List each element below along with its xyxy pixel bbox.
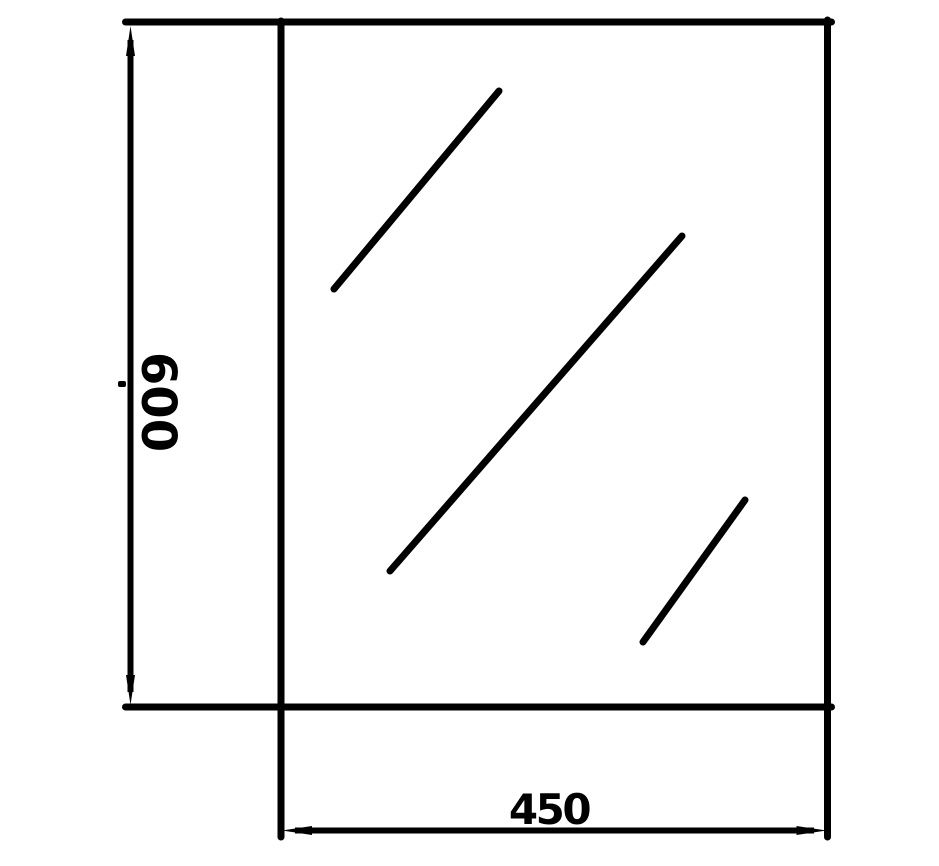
mirror-shine-line-2 (390, 236, 682, 571)
width-dimension-arrow-left-icon (282, 826, 312, 835)
height-dimension-arrow-down-icon (126, 675, 135, 705)
drawing-canvas: 600 450 (0, 0, 939, 866)
width-dimension-label: 450 (509, 785, 590, 834)
height-dimension-label: 600 (130, 352, 186, 452)
mirror-shine-line-1 (334, 91, 499, 289)
mirror-shine-line-3 (643, 500, 745, 642)
height-dimension-arrow-up-icon (126, 26, 135, 56)
width-dimension-arrow-right-icon (797, 826, 827, 835)
height-dimension-text-tick (118, 381, 126, 387)
mirror-dimension-diagram: 600 450 (0, 0, 939, 866)
